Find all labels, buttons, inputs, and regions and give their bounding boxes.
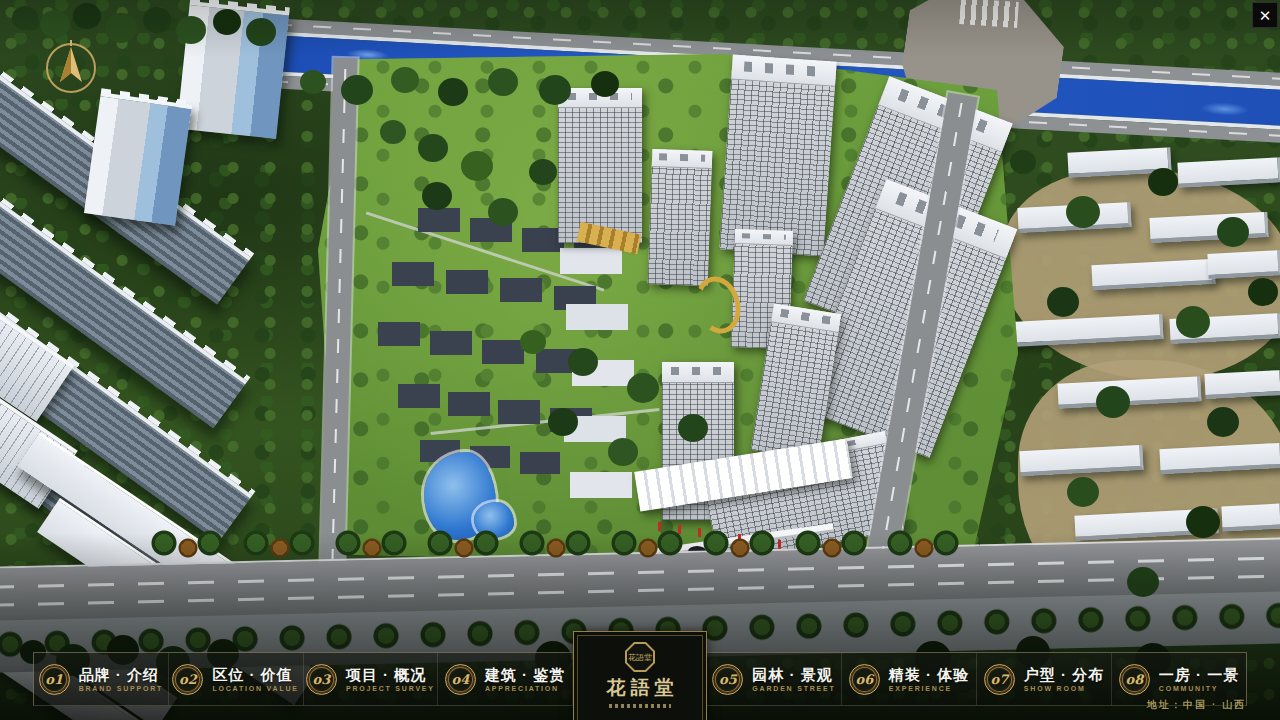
project-logo-panel[interactable]: 花語堂 花語堂 — [573, 631, 707, 720]
midrise-blocks — [560, 248, 622, 274]
courtyard-houses — [392, 262, 434, 286]
building-slab — [1177, 157, 1280, 187]
tree-cluster — [380, 120, 406, 144]
nav-item-interior-experience[interactable]: o6 精装 · 体验 EXPERIENCE — [842, 653, 977, 705]
nav-label-en: APPRECIATION — [485, 685, 559, 692]
building-slab — [1204, 370, 1280, 399]
nav-label-en: LOCATION VALUE — [212, 685, 298, 692]
nav-number-badge: o2 — [172, 664, 203, 695]
building-tower — [84, 92, 192, 226]
nav-label-en: SHOW ROOM — [1024, 685, 1086, 692]
masterplan-3d-view[interactable]: ✕ — [0, 0, 1280, 720]
tree-cluster — [1010, 150, 1036, 174]
building-tower — [177, 1, 290, 139]
nav-label-cn: 一房 · 一景 — [1159, 666, 1239, 683]
crosswalk — [959, 0, 1019, 28]
nav-label-en: BRAND SUPPORT — [79, 685, 163, 692]
nav-label-cn: 精装 · 体验 — [889, 666, 969, 683]
nav-item-landscape[interactable]: o5 园林 · 景观 GARDEN STREET — [707, 653, 842, 705]
nav-number-badge: o6 — [849, 664, 880, 695]
nav-number-badge: o1 — [39, 664, 70, 695]
nav-number-badge: o7 — [984, 664, 1015, 695]
courtyard-houses — [398, 384, 440, 408]
nav-label-cn: 户型 · 分布 — [1024, 666, 1104, 683]
bottom-nav-bar: o1 品牌 · 介绍 BRAND SUPPORT o2 区位 · 价值 LOCA… — [33, 652, 1247, 706]
address-text: 地址：中国 · 山西 — [1147, 698, 1246, 712]
app-window: ✕ o1 品牌 · 介绍 BRAND SUPPORT o2 区位 · 价值 LO… — [0, 0, 1280, 720]
courtyard-houses — [378, 322, 420, 346]
nav-item-architecture[interactable]: o4 建筑 · 鉴赏 APPRECIATION — [438, 653, 573, 705]
seal-text: 花語堂 — [627, 644, 653, 670]
project-logo-title: 花語堂 — [602, 675, 679, 701]
logo-tagline — [609, 704, 671, 708]
tree-cluster — [300, 70, 326, 94]
close-button[interactable]: ✕ — [1252, 2, 1278, 28]
nav-label-cn: 园林 · 景观 — [752, 666, 832, 683]
nav-item-floorplan-distribution[interactable]: o7 户型 · 分布 SHOW ROOM — [977, 653, 1112, 705]
nav-label-en: PROJECT SURVEY — [346, 685, 435, 692]
residential-tower — [648, 149, 713, 286]
nav-label-cn: 区位 · 价值 — [212, 666, 292, 683]
nav-number-badge: o8 — [1119, 664, 1150, 695]
courtyard-houses — [418, 208, 460, 232]
nav-item-project-overview[interactable]: o3 项目 · 概况 PROJECT SURVEY — [304, 653, 439, 705]
nav-label-cn: 品牌 · 介绍 — [79, 666, 159, 683]
tree-cluster — [12, 6, 38, 30]
nav-label-cn: 建筑 · 鉴赏 — [485, 666, 565, 683]
nav-label-en: EXPERIENCE — [889, 685, 952, 692]
nav-number-badge: o4 — [445, 664, 476, 695]
nav-group-left: o1 品牌 · 介绍 BRAND SUPPORT o2 区位 · 价值 LOCA… — [34, 653, 573, 705]
close-icon: ✕ — [1259, 8, 1272, 23]
nav-item-location-value[interactable]: o2 区位 · 价值 LOCATION VALUE — [169, 653, 304, 705]
nav-item-brand-intro[interactable]: o1 品牌 · 介绍 BRAND SUPPORT — [34, 653, 169, 705]
nav-number-badge: o3 — [306, 664, 337, 695]
nav-label-cn: 项目 · 概况 — [346, 666, 426, 683]
building-slab — [1207, 250, 1280, 279]
nav-label-en: COMMUNITY — [1159, 685, 1218, 692]
residential-tower — [719, 55, 836, 257]
building-slab — [1221, 503, 1280, 531]
nav-number-badge: o5 — [712, 664, 743, 695]
octagon-seal-icon: 花語堂 — [625, 642, 655, 672]
compass-icon — [42, 38, 100, 96]
street-trees — [150, 528, 980, 558]
residential-tower — [558, 88, 642, 243]
tree-cluster — [520, 330, 546, 354]
nav-label-en: GARDEN STREET — [752, 685, 835, 692]
